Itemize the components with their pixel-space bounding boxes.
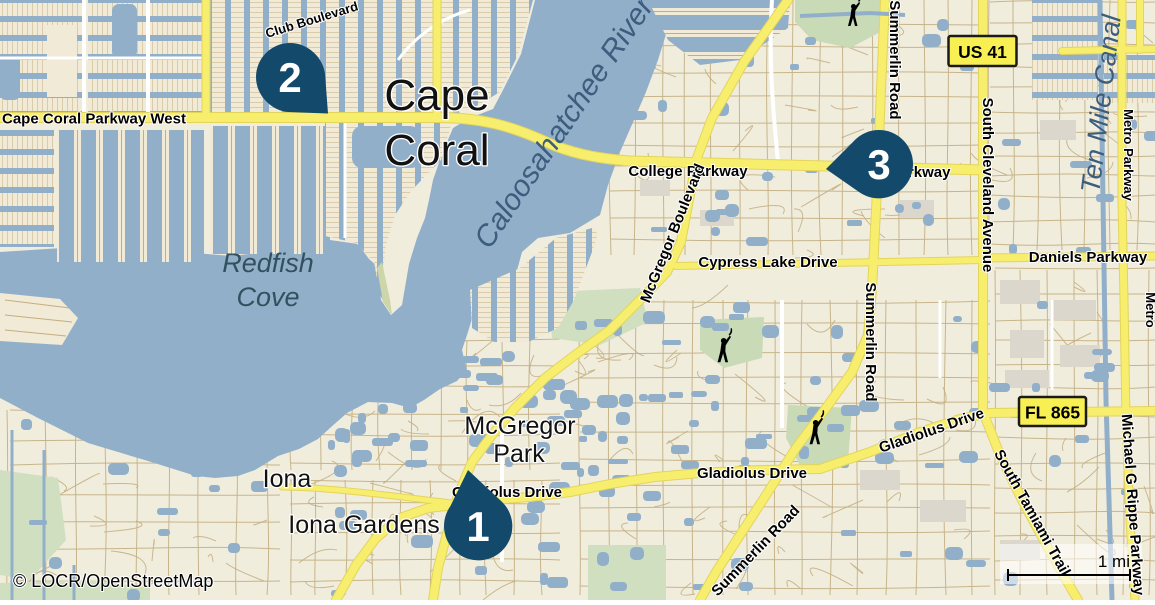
svg-text:South Cleveland Avenue: South Cleveland Avenue — [979, 98, 996, 273]
svg-text:Iona: Iona — [263, 465, 312, 493]
svg-text:Daniels Parkway: Daniels Parkway — [1029, 249, 1148, 266]
svg-text:Cypress Lake Drive: Cypress Lake Drive — [698, 254, 837, 271]
svg-text:Iona Gardens: Iona Gardens — [288, 511, 440, 539]
svg-text:Gladiolus Drive: Gladiolus Drive — [697, 465, 807, 482]
svg-text:Metro Parkway: Metro Parkway — [1121, 109, 1136, 202]
svg-text:US 41: US 41 — [958, 42, 1007, 62]
svg-text:Cape: Cape — [384, 71, 489, 120]
svg-text:FL 865: FL 865 — [1025, 403, 1080, 423]
svg-text:Cove: Cove — [236, 282, 299, 312]
svg-text:1 mi: 1 mi — [1098, 552, 1130, 571]
svg-text:© LOCR/OpenStreetMap: © LOCR/OpenStreetMap — [13, 571, 213, 591]
svg-text:Redfish: Redfish — [222, 248, 314, 278]
svg-text:Park: Park — [493, 440, 545, 468]
svg-text:McGregor: McGregor — [464, 412, 575, 440]
svg-text:Cape Coral Parkway West: Cape Coral Parkway West — [2, 111, 186, 128]
svg-text:2: 2 — [278, 54, 301, 101]
svg-text:1: 1 — [466, 503, 489, 550]
svg-text:Metro: Metro — [1143, 292, 1155, 327]
svg-text:Summerlin Road: Summerlin Road — [862, 282, 879, 401]
svg-text:3: 3 — [867, 141, 890, 188]
svg-text:Coral: Coral — [384, 126, 489, 175]
svg-text:Summerlin Road: Summerlin Road — [886, 0, 903, 119]
